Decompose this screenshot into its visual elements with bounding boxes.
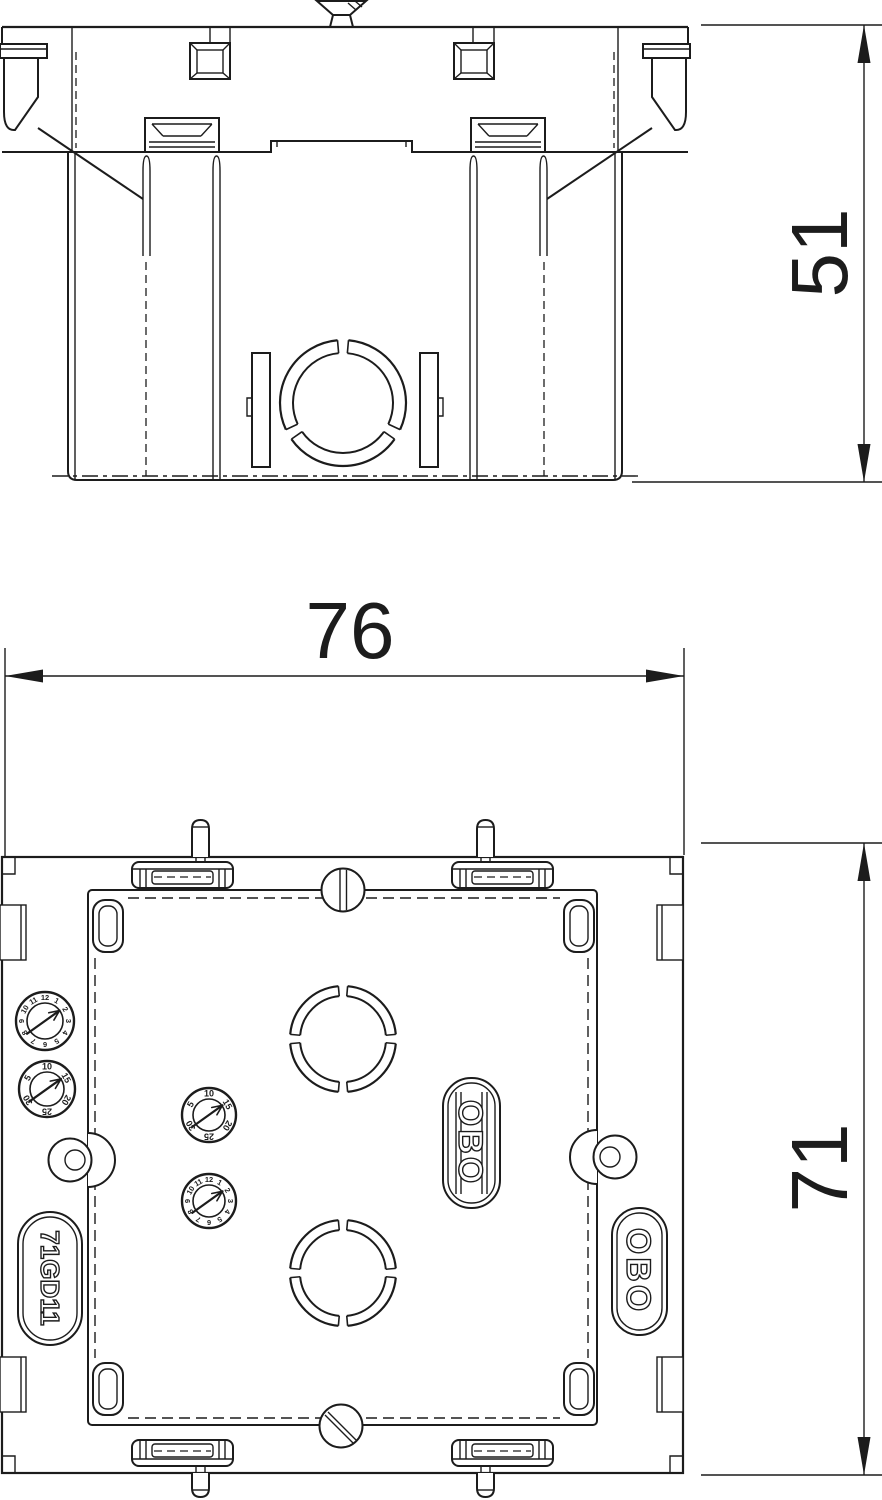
dial-number: 12 [205, 1175, 213, 1184]
flange-slot-left [145, 118, 219, 152]
dial-number: 3 [64, 1019, 73, 1023]
technical-drawing: 51 76 [0, 0, 882, 1500]
corner-fixing-slots [93, 900, 594, 1415]
obo-logo-outer: OBO [612, 1208, 667, 1335]
screw-bottom-icon [320, 1405, 363, 1448]
mounting-boss-left [190, 28, 230, 79]
technical-drawing-page: 51 76 [0, 0, 882, 1500]
plan-view: 71GD11 OBO OBO [0, 820, 683, 1497]
dimension-plan-height: 71 [701, 843, 882, 1475]
date-dial: 10152025305 [19, 1061, 75, 1117]
arrowhead-down-icon [858, 1437, 871, 1475]
dimension-overall-width: 76 [5, 586, 684, 857]
clamp-bar-bottom-left [132, 1440, 233, 1466]
knockout-ring [290, 1220, 396, 1326]
date-dial: 121234567891011 [16, 992, 74, 1050]
dial-number: 9 [183, 1199, 192, 1203]
countersunk-screw-icon [317, 1, 366, 27]
dial-number: 12 [41, 993, 49, 1002]
dial-number: 10 [42, 1062, 52, 1072]
dial-number: 3 [226, 1199, 235, 1203]
arrowhead-left-icon [5, 670, 43, 683]
dial-number: 6 [43, 1040, 47, 1049]
brand-text: OBO [451, 1100, 489, 1186]
clamp-bar-bottom-right [452, 1440, 553, 1466]
clamp-bar-top-right [452, 862, 553, 888]
brand-text: OBO [619, 1228, 657, 1314]
arrowhead-up-icon [858, 25, 871, 63]
dial-number: 6 [207, 1218, 211, 1227]
clamp-bar-top-left [132, 862, 233, 888]
dial-number: 9 [17, 1019, 26, 1023]
dimension-value-51: 51 [775, 209, 864, 298]
flange-bottom-edge [2, 141, 688, 152]
date-dial: 10152025305 [182, 1088, 236, 1142]
arrowhead-up-icon [858, 843, 871, 881]
product-label-pill: 71GD11 [18, 1212, 82, 1345]
knockout-slot-left [247, 353, 270, 467]
flange-slot-right [471, 118, 545, 152]
mounting-hole-left [49, 1133, 116, 1187]
dimension-value-76: 76 [306, 586, 395, 675]
hidden-edge [95, 898, 588, 1418]
dimension-side-height: 51 [632, 25, 882, 482]
knockout-ring [280, 340, 406, 466]
product-code-text: 71GD11 [35, 1230, 65, 1325]
date-dial: 121234567891011 [182, 1174, 236, 1228]
side-view [0, 1, 690, 481]
dial-number: 25 [204, 1131, 214, 1141]
obo-logo-inner: OBO [443, 1078, 500, 1208]
dial-number: 10 [204, 1089, 214, 1099]
inner-frame [88, 890, 597, 1425]
dial-number: 25 [42, 1106, 52, 1116]
arrowhead-right-icon [646, 670, 684, 683]
mounting-hole-right [570, 1130, 637, 1184]
dimension-value-71: 71 [775, 1124, 864, 1213]
mounting-boss-right [454, 28, 494, 79]
knockout-ring [290, 986, 396, 1092]
box-walls [52, 153, 638, 481]
arrowhead-down-icon [858, 444, 871, 482]
knockout-slot-right [420, 353, 443, 467]
screw-top-icon [322, 869, 365, 912]
